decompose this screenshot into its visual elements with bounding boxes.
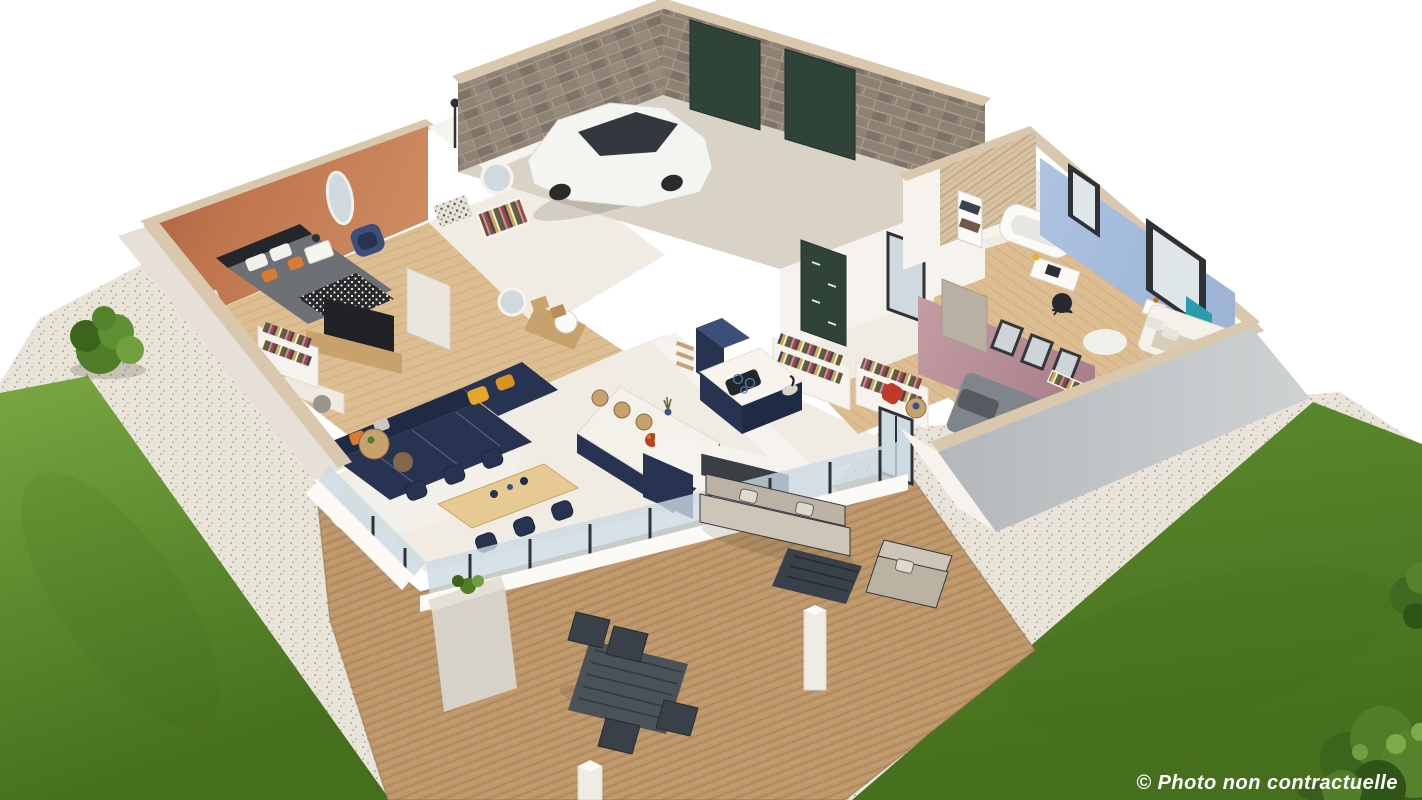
round-mirror xyxy=(482,163,512,193)
coffee-table xyxy=(359,429,389,459)
table-decor xyxy=(490,490,498,498)
bar-stool xyxy=(592,390,608,406)
bar-stool xyxy=(636,414,652,430)
bedside-lamp xyxy=(312,234,320,242)
scene-canvas: © Photo non contractuelle xyxy=(0,0,1422,800)
table-plant xyxy=(368,437,375,444)
green-storage-cabinet xyxy=(801,240,846,346)
bush-highlight xyxy=(1352,744,1368,760)
round-mirror-small xyxy=(499,289,525,315)
round-rug xyxy=(1083,329,1127,355)
coffee-table-small xyxy=(393,452,413,472)
bollard-light xyxy=(804,610,826,690)
desk-stool xyxy=(313,395,331,413)
desk-lamp xyxy=(1033,254,1040,261)
table-decor xyxy=(507,484,513,490)
book-on-table xyxy=(913,403,920,410)
bar-stool xyxy=(614,402,630,418)
planter-plant xyxy=(472,575,484,587)
floorplan-render: © Photo non contractuelle xyxy=(0,0,1422,800)
bush xyxy=(116,336,144,364)
table-decor xyxy=(520,477,528,485)
fruit xyxy=(647,435,651,439)
bush xyxy=(92,306,116,330)
bottle xyxy=(1153,297,1159,303)
watermark-text: © Photo non contractuelle xyxy=(1136,772,1398,794)
planter-plant xyxy=(452,575,464,587)
bush-highlight xyxy=(1386,734,1406,754)
